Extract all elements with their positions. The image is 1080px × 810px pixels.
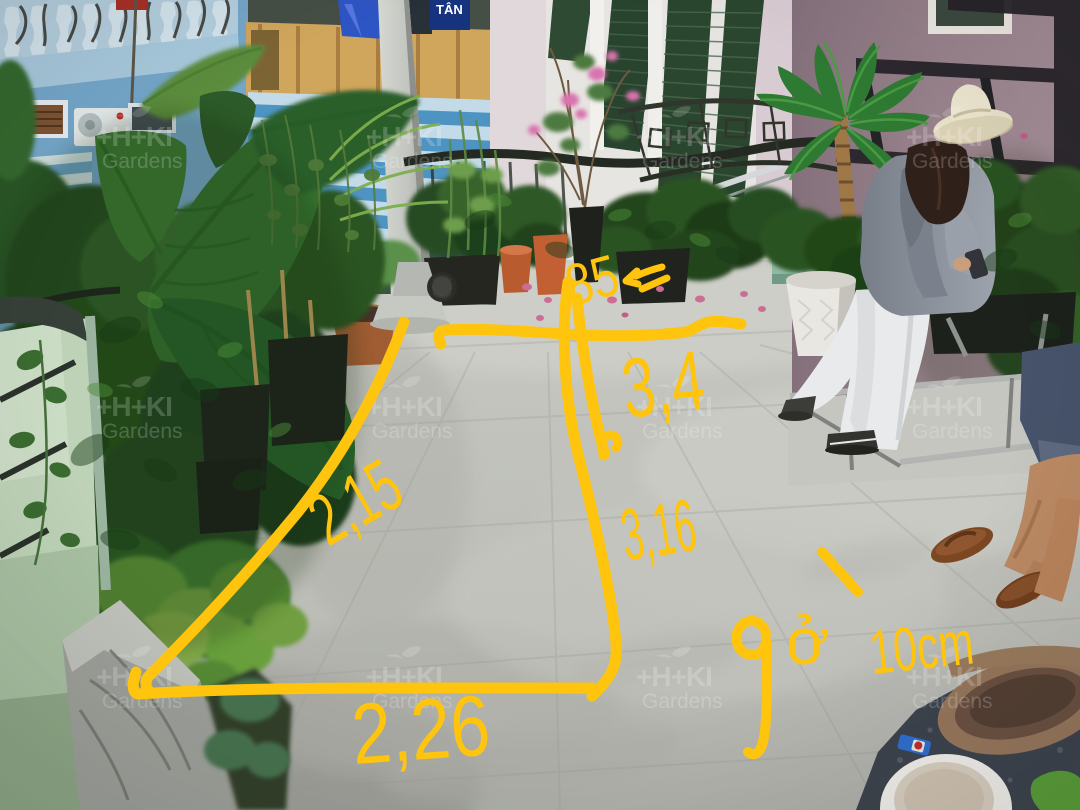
svg-text:ở: ở bbox=[786, 604, 829, 678]
svg-text:3,16: 3,16 bbox=[616, 483, 702, 577]
svg-text:10cm: 10cm bbox=[866, 608, 977, 687]
svg-text:3,4: 3,4 bbox=[617, 333, 710, 436]
svg-text:2,26: 2,26 bbox=[349, 678, 493, 783]
